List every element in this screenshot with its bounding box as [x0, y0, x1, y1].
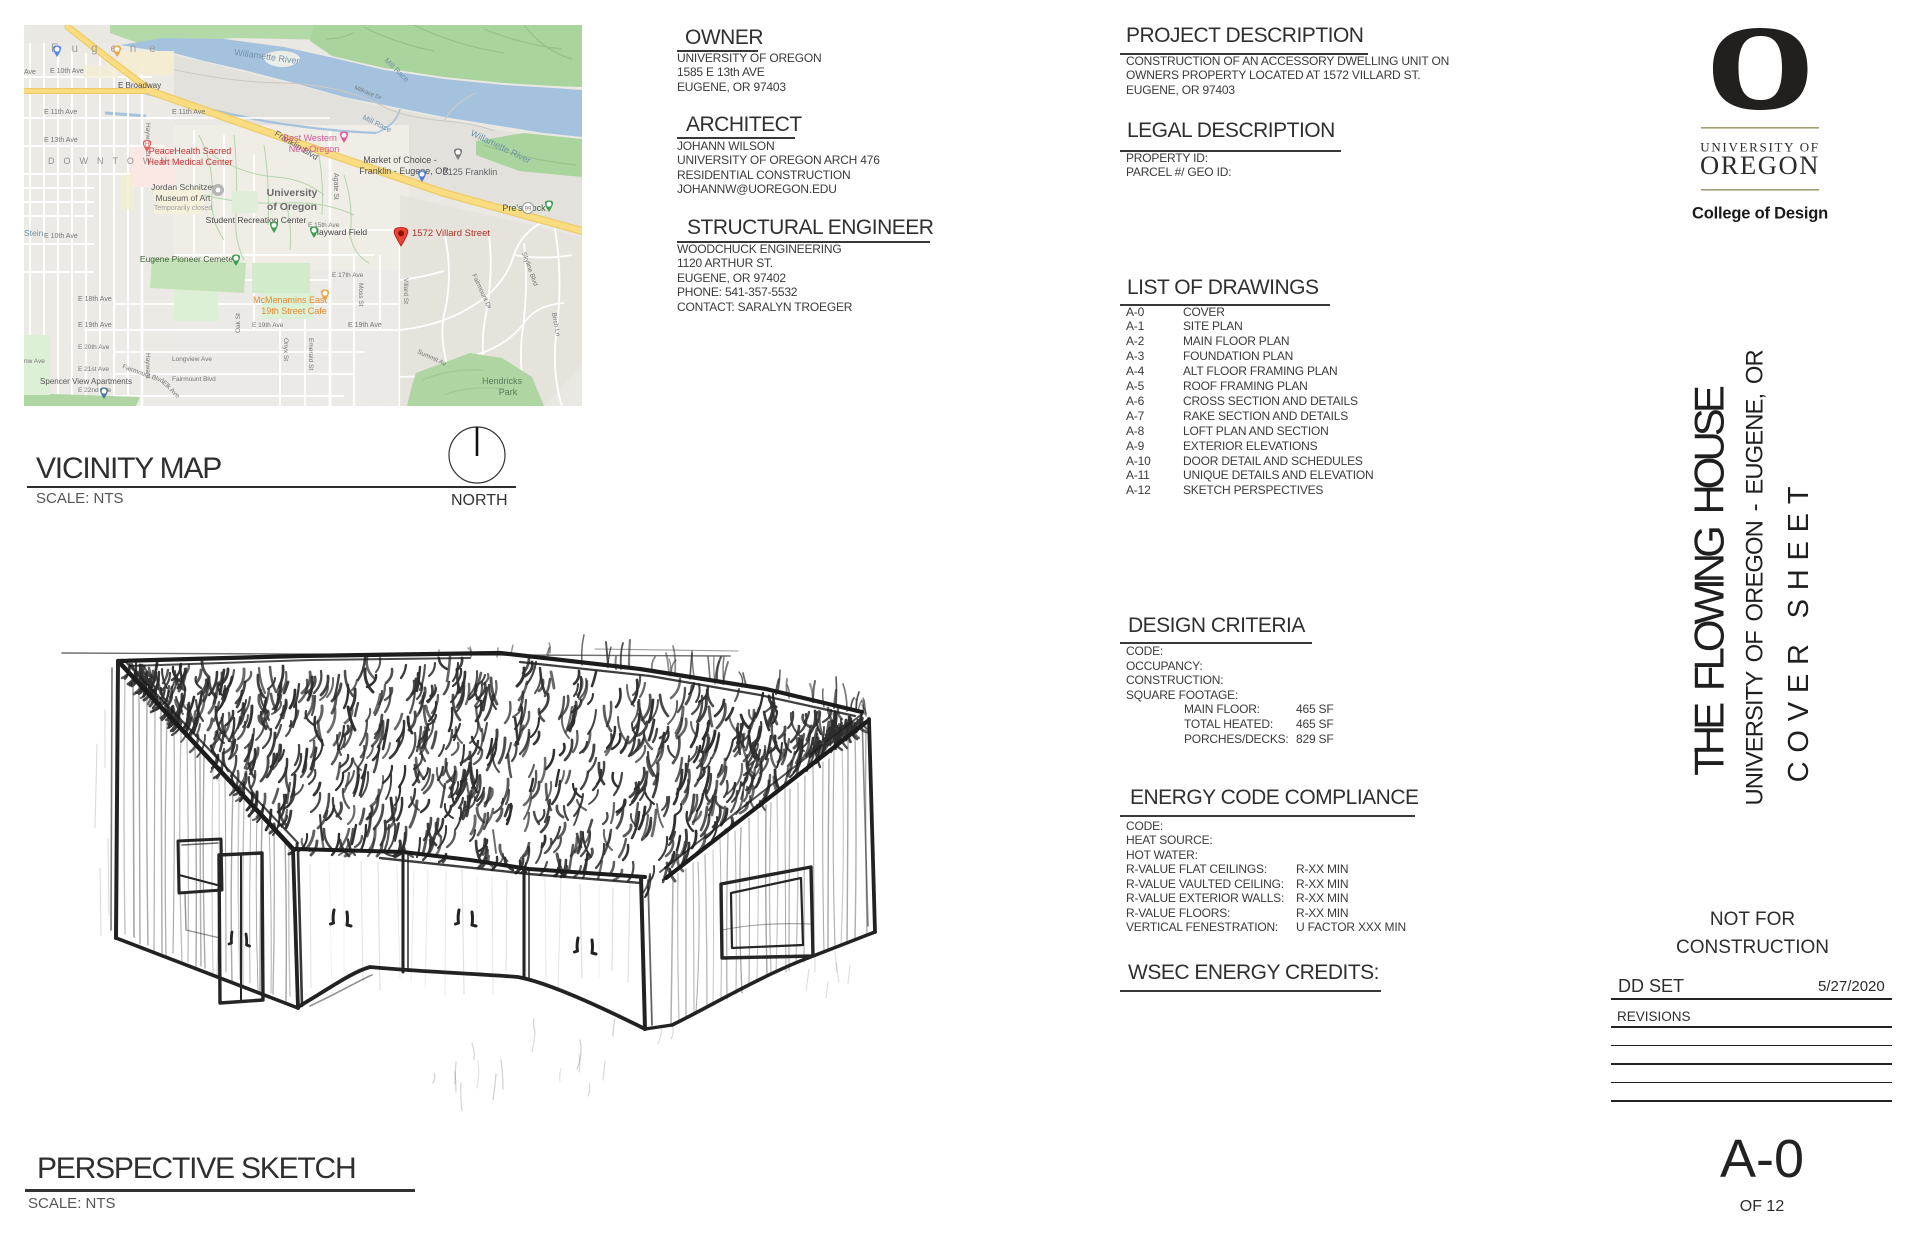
svg-text:Onyx St: Onyx St	[282, 338, 289, 361]
svg-text:Stein: Stein	[24, 228, 44, 238]
svg-text:Agate St: Agate St	[332, 173, 339, 200]
svg-text:E 21st Ave: E 21st Ave	[78, 366, 109, 373]
svg-text:New Oregon: New Oregon	[289, 144, 340, 154]
svg-text:Museum of Art: Museum of Art	[156, 193, 211, 203]
svg-text:E Broadway: E Broadway	[118, 81, 161, 90]
svg-text:McMenamins East: McMenamins East	[253, 295, 328, 305]
svg-text:Ave: Ave	[24, 69, 36, 76]
svg-text:Hayward Field: Hayward Field	[313, 227, 368, 237]
svg-text:Longview Ave: Longview Ave	[172, 356, 212, 363]
svg-text:E 19th Ave: E 19th Ave	[348, 322, 382, 329]
svg-text:Moss St: Moss St	[357, 283, 364, 307]
svg-text:Heart Medical Center: Heart Medical Center	[147, 157, 232, 167]
svg-text:99: 99	[525, 207, 532, 213]
svg-text:E 19th Ave: E 19th Ave	[252, 322, 284, 329]
svg-text:OREGON: OREGON	[1700, 150, 1820, 180]
svg-text:Student Recreation Center: Student Recreation Center	[206, 215, 307, 225]
svg-text:E 10th Ave: E 10th Ave	[50, 68, 84, 75]
svg-text:University: University	[267, 187, 318, 199]
svg-text:E 20th Ave: E 20th Ave	[78, 344, 110, 351]
svg-text:Villard St: Villard St	[402, 278, 409, 304]
svg-text:E 19th Ave: E 19th Ave	[78, 322, 112, 329]
svg-text:E 11th Ave: E 11th Ave	[44, 109, 77, 116]
svg-text:PeaceHealth Sacred: PeaceHealth Sacred	[149, 146, 232, 156]
svg-text:Temporarily closed: Temporarily closed	[154, 205, 212, 212]
svg-text:E 13th Ave: E 13th Ave	[44, 137, 78, 144]
svg-text:Franklin - Eugene, OR: Franklin - Eugene, OR	[359, 166, 449, 176]
svg-text:College of Design: College of Design	[1692, 205, 1828, 223]
svg-text:H: H	[145, 141, 150, 148]
svg-text:of Oregon: of Oregon	[267, 201, 317, 213]
svg-text:E 10th Ave: E 10th Ave	[44, 233, 78, 240]
svg-text:E 11th Ave: E 11th Ave	[172, 109, 205, 116]
svg-text:Spencer View Apartments: Spencer View Apartments	[40, 377, 132, 386]
svg-text:Emerald St: Emerald St	[307, 338, 314, 370]
svg-text:1572 Villard Street: 1572 Villard Street	[412, 228, 490, 239]
svg-text:Eugene Pioneer Cemetery: Eugene Pioneer Cemetery	[140, 254, 241, 264]
svg-text:19th Street Cafe: 19th Street Cafe	[261, 306, 327, 316]
svg-text:E 17th Ave: E 17th Ave	[332, 272, 364, 279]
svg-text:Oak St: Oak St	[235, 313, 242, 333]
svg-text:2125 Franklin: 2125 Franklin	[443, 167, 498, 177]
svg-text:Best Western: Best Western	[283, 133, 337, 143]
svg-text:nw Ave: nw Ave	[24, 358, 45, 365]
svg-text:E 18th Ave: E 18th Ave	[78, 296, 112, 303]
svg-text:Hendricks: Hendricks	[482, 376, 523, 386]
svg-text:Eugene: Eugene	[51, 43, 169, 55]
svg-text:Park: Park	[499, 387, 518, 397]
svg-text:Market of Choice -: Market of Choice -	[363, 155, 437, 165]
svg-text:Fairmount Blvd: Fairmount Blvd	[172, 376, 216, 383]
svg-text:Jordan Schnitzer: Jordan Schnitzer	[151, 182, 215, 192]
